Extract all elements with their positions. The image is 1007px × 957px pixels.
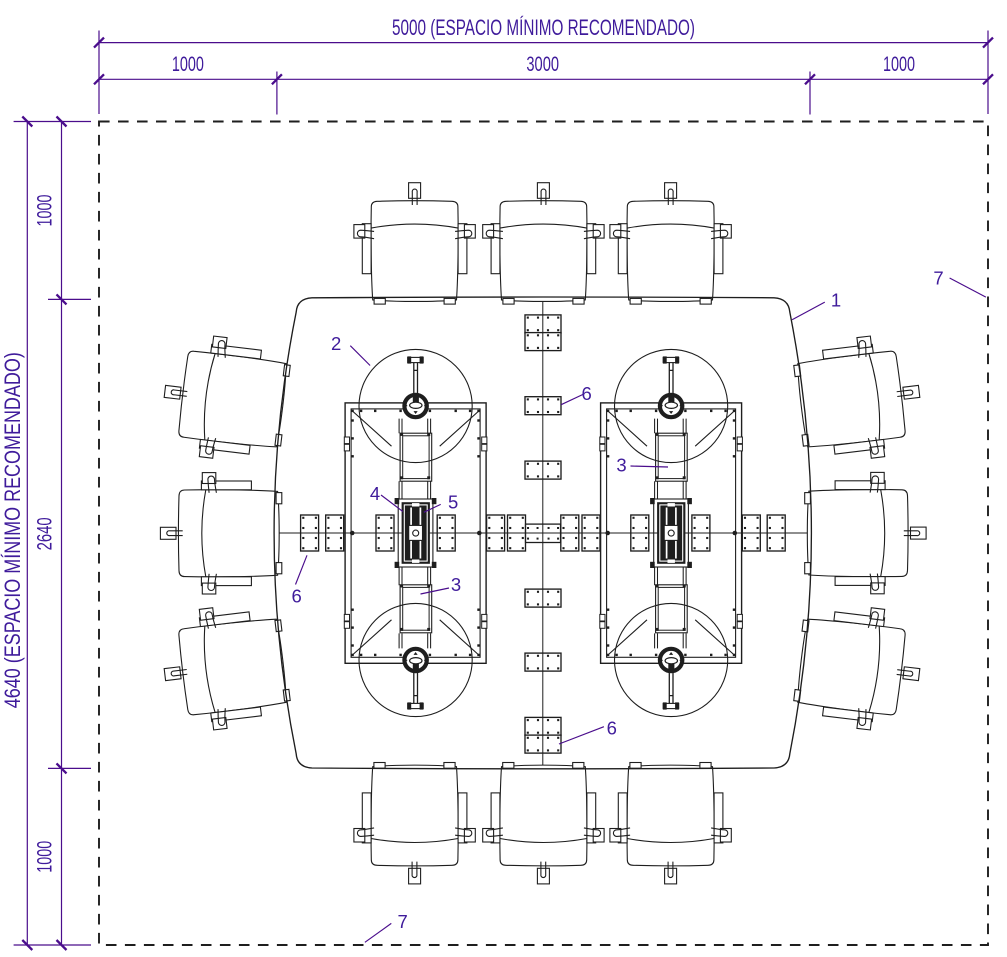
svg-text:6: 6 <box>582 383 592 404</box>
svg-text:6: 6 <box>607 718 617 739</box>
svg-text:2: 2 <box>331 333 341 354</box>
svg-text:7: 7 <box>397 911 407 932</box>
svg-text:3: 3 <box>616 455 626 476</box>
svg-text:3: 3 <box>451 574 461 595</box>
svg-text:1000: 1000 <box>33 194 57 226</box>
svg-text:1: 1 <box>831 290 841 311</box>
svg-text:1000: 1000 <box>883 52 915 76</box>
svg-text:3000: 3000 <box>526 52 559 76</box>
svg-text:5: 5 <box>448 491 458 512</box>
svg-text:7: 7 <box>933 268 943 289</box>
svg-text:1000: 1000 <box>172 52 204 76</box>
svg-text:5000 (ESPACIO MÍNIMO RECOMENDA: 5000 (ESPACIO MÍNIMO RECOMENDADO) <box>392 15 695 40</box>
svg-text:1000: 1000 <box>33 841 57 873</box>
svg-text:6: 6 <box>291 586 301 607</box>
svg-text:2640: 2640 <box>33 517 57 550</box>
svg-text:4: 4 <box>370 483 380 504</box>
svg-text:4640 (ESPACIO MÍNIMO RECOMENDA: 4640 (ESPACIO MÍNIMO RECOMENDADO) <box>0 352 25 708</box>
